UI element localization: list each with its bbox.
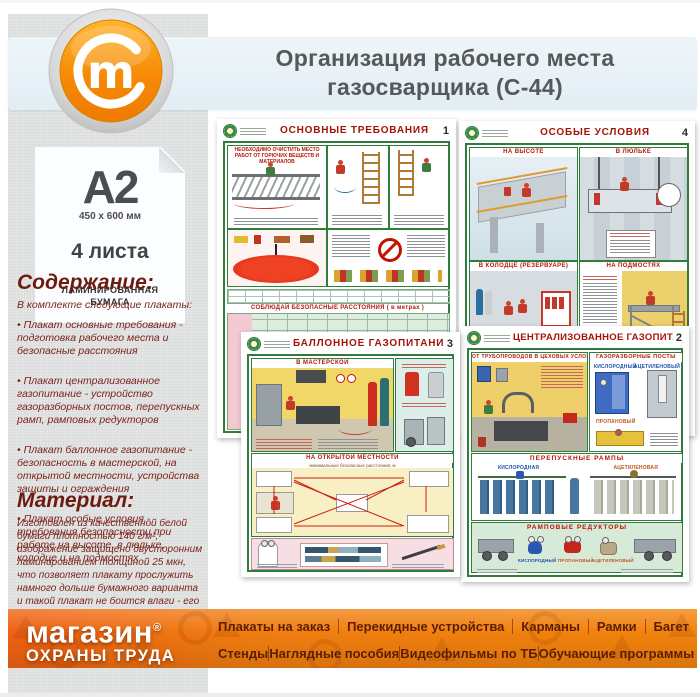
pressure-gauge bbox=[600, 379, 607, 386]
footer-menu-row1: Плакаты на заказ Перекидные устройства К… bbox=[218, 619, 689, 634]
propane-reducer-label: ПРОПАНОВЫЙ bbox=[558, 558, 594, 563]
text-lines bbox=[394, 215, 444, 225]
footer-brand-line2: ОХРАНЫ ТРУДА bbox=[26, 648, 226, 665]
poster-emblem-text-lines bbox=[264, 339, 290, 348]
hose-line bbox=[234, 198, 294, 209]
electrical-panel bbox=[477, 366, 491, 382]
poster2-section4-title: НА ПОДМОСТЯХ bbox=[580, 262, 687, 271]
text-lines bbox=[402, 362, 446, 368]
poster4-title: ЦЕНТРАЛИЗОВАННОЕ ГАЗОПИТАНИЕ bbox=[513, 332, 673, 343]
contents-intro: В комплекте следующие плакаты: bbox=[17, 299, 201, 311]
top-edge-strip bbox=[0, 0, 700, 3]
workbench bbox=[296, 406, 340, 424]
material-section: Материал: Изготовлен из качественной бел… bbox=[17, 489, 203, 621]
flammable-item bbox=[234, 236, 248, 243]
poster3-section1-title: В МАСТЕРСКОЙ bbox=[252, 359, 393, 368]
poster4-section4-title: РАМПОВЫЕ РЕДУКТОРЫ bbox=[472, 523, 682, 532]
cylinder-stand bbox=[427, 417, 445, 445]
flammable-item bbox=[300, 235, 314, 243]
trolley-wheel bbox=[498, 551, 508, 561]
poster2-title: ОСОБЫЕ УСЛОВИЯ bbox=[511, 127, 679, 138]
poster2-scene-height: НА ВЫСОТЕ bbox=[469, 147, 578, 261]
menu-divider bbox=[512, 619, 513, 634]
equipment-item bbox=[594, 193, 600, 205]
poster-emblem-icon bbox=[465, 126, 479, 140]
registered-mark: ® bbox=[153, 622, 162, 634]
poster-footer-text bbox=[257, 563, 297, 568]
acetylene-reducer-label: АЦЕТИЛЕНОВЫЙ bbox=[592, 558, 634, 563]
single-cylinder bbox=[570, 478, 579, 514]
detail-callout-circle bbox=[657, 183, 681, 207]
flammable-item bbox=[254, 235, 261, 244]
cross-section-bar bbox=[305, 547, 381, 553]
text-lines bbox=[332, 235, 370, 257]
menu-item-posters-custom[interactable]: Плакаты на заказ bbox=[218, 619, 330, 634]
manifold-valve bbox=[630, 470, 638, 478]
menu-divider bbox=[645, 619, 646, 634]
poster4-section2-title: ГАЗОРАЗБОРНЫЕ ПОСТЫ bbox=[590, 353, 682, 362]
poster1-number: 1 bbox=[443, 125, 450, 137]
brand-word: магазин bbox=[26, 614, 153, 649]
text-lines bbox=[234, 217, 318, 225]
footer-bar: магазин® ОХРАНЫ ТРУДА Плакаты на заказ П… bbox=[8, 609, 697, 668]
material-heading: Материал: bbox=[17, 489, 203, 513]
info-card bbox=[606, 230, 656, 258]
poster2-number: 4 bbox=[682, 127, 689, 139]
menu-item-stands[interactable]: Стенды bbox=[218, 646, 268, 661]
acetylene-reducer bbox=[600, 542, 617, 555]
footer-menu: Плакаты на заказ Перекидные устройства К… bbox=[218, 609, 689, 668]
propane-post-unit bbox=[596, 431, 644, 446]
poster1-section1-title: НЕОБХОДИМО ОЧИСТИТЬ МЕСТО РАБОТ ОТ ГОРЮЧ… bbox=[230, 147, 324, 165]
worker-figure bbox=[504, 301, 513, 315]
poster4-header: ЦЕНТРАЛИЗОВАННОЕ ГАЗОПИТАНИЕ 2 bbox=[467, 330, 683, 345]
brand-logo-icon[interactable]: m bbox=[46, 6, 176, 136]
menu-divider bbox=[338, 619, 339, 634]
cabinet-door bbox=[612, 375, 625, 409]
gas-cylinder bbox=[485, 291, 492, 315]
text-lines bbox=[610, 239, 650, 253]
poster1-title: ОСНОВНЫЕ ТРЕБОВАНИЯ bbox=[269, 125, 440, 136]
hose-line bbox=[338, 422, 372, 435]
shop-scene bbox=[472, 362, 587, 451]
pressure-gauge bbox=[537, 536, 544, 543]
poster3-title: БАЛЛОННОЕ ГАЗОПИТАНИЕ bbox=[293, 338, 444, 349]
text-lines bbox=[407, 235, 445, 257]
poster1-scene-truss: НЕОБХОДИМО ОЧИСТИТЬ МЕСТО РАБОТ ОТ ГОРЮЧ… bbox=[227, 145, 327, 229]
contents-item: • Плакат централизованное газопитание - … bbox=[17, 375, 201, 427]
poster-footer-text bbox=[392, 563, 444, 568]
hose-line bbox=[334, 180, 356, 193]
trolley-wheel bbox=[662, 551, 672, 561]
junction-box bbox=[496, 368, 508, 382]
footer-menu-row2: Стенды Наглядные пособия Видеофильмы по … bbox=[218, 646, 689, 661]
contents-heading: Содержание: bbox=[17, 271, 201, 295]
poster3-body: В МАСТЕРСКОЙ bbox=[247, 354, 454, 572]
poster2-header: ОСОБЫЕ УСЛОВИЯ 4 bbox=[465, 125, 689, 140]
poster2-section1-title: НА ВЫСОТЕ bbox=[470, 148, 577, 157]
cradle-scene bbox=[580, 157, 687, 260]
pressure-gauge bbox=[574, 536, 581, 543]
flammable-item bbox=[274, 236, 290, 243]
safety-sign-icon bbox=[336, 374, 345, 383]
poster2-scene-cradle: В ЛЮЛЬКЕ bbox=[579, 147, 688, 261]
oxygen-post-label: КИСЛОРОДНЫЙ bbox=[594, 364, 636, 370]
poster1-scene-ladders bbox=[389, 145, 450, 229]
equipment-item bbox=[504, 187, 511, 196]
torch-cross-section-panel bbox=[300, 543, 388, 567]
pressure-gauge bbox=[615, 429, 622, 436]
poster1-header: ОСНОВНЫЕ ТРЕБОВАНИЯ 1 bbox=[223, 123, 450, 138]
safety-sign-icon bbox=[347, 374, 356, 383]
text-lines bbox=[650, 432, 678, 446]
brand-logo-svg: m bbox=[46, 6, 176, 136]
poster-footer-text bbox=[621, 568, 673, 573]
poster4-scene-gas-posts: ГАЗОРАЗБОРНЫЕ ПОСТЫ КИСЛОРОДНЫЙ АЦЕТИЛЕН… bbox=[589, 352, 683, 452]
poster1-scene-prohibition bbox=[327, 229, 450, 287]
cabinet-tube bbox=[658, 375, 667, 403]
worker-figure bbox=[522, 183, 531, 197]
open-area-diagram bbox=[252, 468, 453, 536]
pressure-gauge bbox=[528, 536, 535, 543]
workshop-scene bbox=[252, 368, 393, 451]
exhaust-hood bbox=[296, 370, 326, 383]
manifold-valve bbox=[516, 471, 524, 479]
text-lines bbox=[610, 233, 650, 237]
poster-emblem-icon bbox=[223, 124, 237, 138]
poster2-section3-title: В КОЛОДЦЕ (РЕЗЕРВУАРЕ) bbox=[470, 262, 577, 271]
pressure-gauge bbox=[268, 540, 275, 547]
oxygen-cylinder bbox=[380, 378, 389, 426]
text-lines bbox=[583, 283, 617, 323]
page-title-line1: Организация рабочего места bbox=[200, 44, 690, 73]
paper-size: 450 x 600 мм bbox=[35, 211, 185, 222]
fire-extinguisher bbox=[545, 297, 550, 309]
menu-item-training-programs[interactable]: Обучающие программы bbox=[539, 646, 695, 661]
poster-emblem-icon bbox=[467, 331, 481, 345]
poster4-scene-shop: ОТ ТРУБОПРОВОДОВ В ЦЕХОВЫХ УСЛОВИЯХ bbox=[471, 352, 588, 452]
truss-graphic bbox=[232, 174, 320, 200]
bottom-edge-strip bbox=[0, 693, 700, 697]
ladder-graphic bbox=[362, 152, 380, 204]
poster-emblem-icon bbox=[247, 337, 261, 351]
ladder-graphic bbox=[398, 150, 414, 196]
cylinder-cap-gray bbox=[428, 372, 444, 398]
text-lines bbox=[256, 437, 312, 449]
page: { "header": { "title_line1": "Организаци… bbox=[0, 0, 700, 700]
cable bbox=[598, 157, 600, 191]
distance-arrows bbox=[252, 468, 449, 534]
oxygen-reducer-label: КИСЛОРОДНЫЙ bbox=[518, 558, 556, 563]
poster-footer-text bbox=[477, 568, 517, 573]
menu-item-frames[interactable]: Рамки bbox=[597, 619, 637, 634]
acetylene-cylinder-bank bbox=[594, 480, 674, 514]
text-lines bbox=[583, 275, 617, 280]
pressure-gauge bbox=[261, 540, 268, 547]
bridge-pier bbox=[536, 223, 544, 253]
torch-tip bbox=[437, 544, 446, 550]
footer-brand-line1: магазин® bbox=[26, 612, 226, 648]
poster4-number: 2 bbox=[676, 332, 683, 344]
paper-sheets-count: 4 листа bbox=[35, 240, 185, 264]
contents-item: • Плакат основные требования - подготовк… bbox=[17, 319, 201, 358]
pipe-arc bbox=[502, 392, 534, 413]
poster1-scene-danger-zone bbox=[227, 229, 327, 287]
acetylene-post-cabinet bbox=[647, 370, 677, 418]
poster4-scene-reducers: РАМПОВЫЕ РЕДУКТОРЫ КИСЛОРОДНЫЙ ПРОПАНОВЫ… bbox=[471, 522, 683, 573]
extinguisher-rack bbox=[541, 291, 571, 327]
danger-ellipse bbox=[233, 255, 319, 283]
poster4-scene-ramps: ПЕРЕПУСКНЫЕ РАМПЫ КИСЛОРОДНАЯ АЦЕТИЛЕНОВ… bbox=[471, 453, 683, 521]
poster1-section2-title: СОБЛЮДАЙ БЕЗОПАСНЫЕ РАССТОЯНИЯ ( в метра… bbox=[227, 305, 448, 311]
worker-figure bbox=[266, 162, 275, 176]
oxygen-post-cabinet bbox=[595, 372, 629, 414]
worker-figure bbox=[336, 160, 348, 180]
footer-brand[interactable]: магазин® ОХРАНЫ ТРУДА bbox=[26, 612, 226, 665]
worker-figure bbox=[422, 158, 434, 180]
poster3-scene-workshop: В МАСТЕРСКОЙ bbox=[251, 358, 394, 452]
page-title: Организация рабочего места газосварщика … bbox=[200, 44, 690, 102]
text-lines bbox=[402, 401, 446, 407]
material-text: Изготовлен из качественной белой бумаги … bbox=[17, 517, 203, 621]
poster-emblem-text-lines bbox=[484, 333, 510, 342]
fire-extinguisher bbox=[552, 297, 557, 309]
prohibition-sign-icon bbox=[378, 238, 402, 262]
pressure-gauge bbox=[565, 536, 572, 543]
propane-post-label: ПРОПАНОВЫЙ bbox=[596, 419, 636, 425]
height-scene bbox=[470, 157, 577, 260]
menu-item-safety-videos[interactable]: Видеофильмы по ТБ bbox=[400, 646, 537, 661]
poster3-section2-title: НА ОТКРЫТОЙ МЕСТНОСТИ bbox=[252, 454, 453, 463]
text-lines bbox=[541, 366, 583, 388]
worker-figure bbox=[518, 299, 527, 313]
fire-extinguisher bbox=[559, 297, 564, 309]
gas-cylinder bbox=[476, 289, 483, 315]
poster4-section1-title: ОТ ТРУБОПРОВОДОВ В ЦЕХОВЫХ УСЛОВИЯХ bbox=[472, 353, 587, 362]
pressure-gauge bbox=[602, 537, 609, 544]
workbench bbox=[494, 421, 548, 441]
logo-letter: m bbox=[87, 45, 135, 99]
poster4-body: ОТ ТРУБОПРОВОДОВ В ЦЕХОВЫХ УСЛОВИЯХ ГАЗО… bbox=[467, 348, 683, 577]
text-lines bbox=[332, 215, 382, 225]
trolley-wheel bbox=[406, 437, 416, 447]
menu-divider bbox=[588, 619, 589, 634]
poster2-section2-title: В ЛЮЛЬКЕ bbox=[580, 148, 687, 157]
menu-item-visual-aids[interactable]: Наглядные пособия bbox=[269, 646, 399, 661]
poster-cylinder-gas-supply[interactable]: БАЛЛОННОЕ ГАЗОПИТАНИЕ 3 В МАСТЕРСКОЙ bbox=[241, 332, 460, 577]
menu-item-flip-devices[interactable]: Перекидные устройства bbox=[347, 619, 504, 634]
cylinder-cap-red bbox=[405, 372, 419, 396]
text-lines bbox=[318, 437, 378, 449]
poster-emblem-text-lines bbox=[240, 126, 266, 135]
poster1-scene-worker-ladder bbox=[327, 145, 389, 229]
acetylene-cylinder bbox=[368, 382, 377, 426]
worker-figure bbox=[620, 177, 629, 191]
trolley-wheel bbox=[644, 551, 654, 561]
oxygen-cylinder-bank bbox=[480, 480, 558, 514]
poster3-scene-open-area: НА ОТКРЫТОЙ МЕСТНОСТИ минимальные безопа… bbox=[251, 453, 454, 537]
bridge-pier bbox=[490, 217, 498, 253]
small-figures-row bbox=[334, 270, 442, 282]
poster-centralized-gas-supply[interactable]: ЦЕНТРАЛИЗОВАННОЕ ГАЗОПИТАНИЕ 2 ОТ ТРУБОП… bbox=[461, 326, 689, 582]
poster4-section3-title: ПЕРЕПУСКНЫЕ РАМПЫ bbox=[472, 454, 682, 463]
trolley-wheel bbox=[482, 551, 492, 561]
red-toolbox bbox=[563, 413, 577, 423]
metal-cabinet bbox=[256, 384, 282, 426]
worker-figure bbox=[484, 400, 495, 418]
poster-emblem-text-lines bbox=[482, 128, 508, 137]
page-title-line2: газосварщика (С-44) bbox=[200, 73, 690, 102]
bucket bbox=[478, 437, 486, 447]
menu-item-pockets[interactable]: Карманы bbox=[521, 619, 580, 634]
worker-figure bbox=[646, 291, 655, 305]
poster3-number: 3 bbox=[447, 338, 454, 350]
poster3-devices-column bbox=[395, 358, 454, 452]
cross-section-bar bbox=[305, 556, 381, 562]
distance-numbers-strip bbox=[227, 289, 450, 304]
menu-item-baguette[interactable]: Багет bbox=[654, 619, 689, 634]
welding-torch bbox=[402, 545, 441, 560]
worker-figure bbox=[286, 396, 295, 410]
poster3-header: БАЛЛОННОЕ ГАЗОПИТАНИЕ 3 bbox=[247, 336, 454, 351]
